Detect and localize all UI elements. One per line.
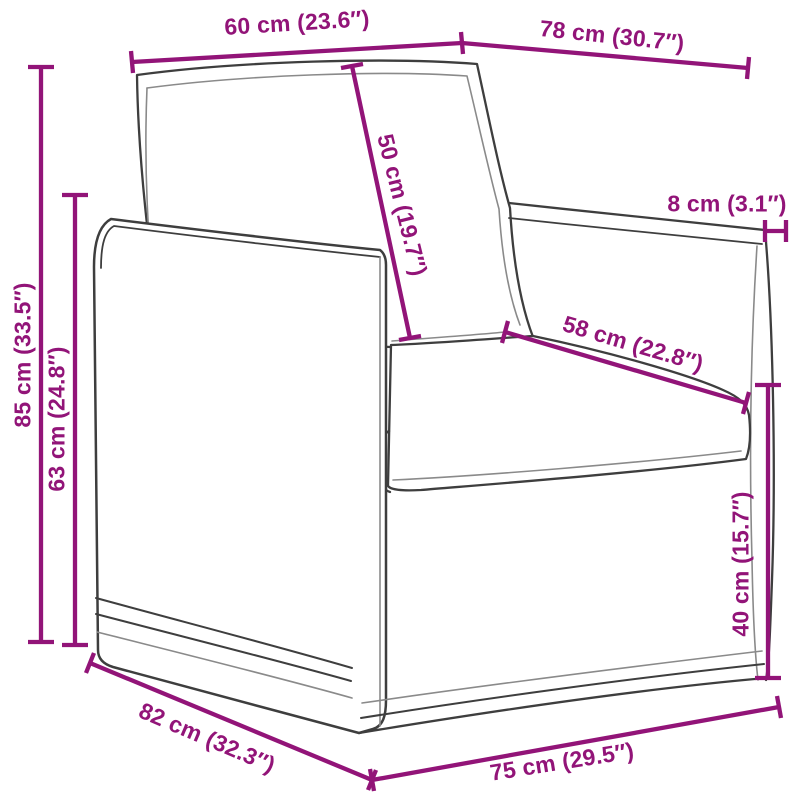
dimension-line-40 <box>755 385 781 678</box>
dimension-line-75 <box>370 696 781 791</box>
dimension-label-arm-height: 63 cm (24.8″) <box>44 346 71 491</box>
armchair-diagram-svg <box>0 0 800 800</box>
skirt-seam <box>361 664 764 718</box>
dimension-label-total-height: 85 cm (33.5″) <box>10 282 37 427</box>
skirt-seam-light <box>362 651 762 703</box>
dimension-diagram: 60 cm (23.6″) 78 cm (30.7″) 50 cm (19.7″… <box>0 0 800 800</box>
dimension-label-seat-height: 40 cm (15.7″) <box>728 491 755 636</box>
dimension-line-8 <box>765 220 786 242</box>
right-armrest-top-piping <box>509 218 762 244</box>
left-panel-outline <box>94 219 386 733</box>
armchair-drawing <box>94 61 774 733</box>
skirt-bottom-edge <box>359 678 766 733</box>
dimension-label-armrest-width: 8 cm (3.1″) <box>667 191 786 218</box>
